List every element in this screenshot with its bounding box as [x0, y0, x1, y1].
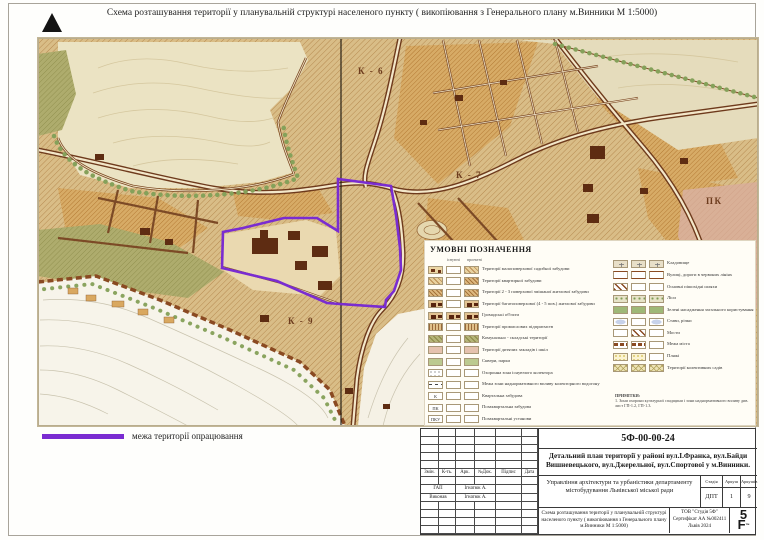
legend-row: Громадські об'єкти: [428, 310, 610, 322]
legend-row: Території малоповерхової садибної забудо…: [428, 264, 610, 276]
legend-swatch: [428, 300, 443, 308]
stage-value: ДПТ: [701, 488, 723, 507]
empty-cell: [439, 477, 456, 485]
empty-cell: [522, 477, 538, 485]
legend-swatch: [649, 318, 664, 326]
title-block-right: 5Ф-00-00-24 Детальний план території у р…: [538, 429, 757, 534]
empty-cell: [496, 429, 522, 437]
project-title: Детальний план території у районі вул.І.…: [539, 449, 757, 476]
legend-label: Комунально - складські території: [482, 336, 547, 341]
legend-swatch: [446, 346, 461, 354]
legend-row: Вулиці, дороги в червоних лініях: [613, 270, 755, 282]
studio-5f-logo: 5 Fтм: [730, 508, 757, 533]
legend-swatch: [631, 306, 646, 314]
sheet-label: Аркуш: [723, 476, 741, 488]
legend-swatch: [649, 295, 664, 303]
legend-swatch: [446, 335, 461, 343]
column-header-cell: Дата: [522, 469, 538, 477]
legend-swatch: [464, 369, 479, 377]
legend-swatch: [649, 329, 664, 337]
empty-cell: [475, 502, 496, 510]
legend-swatch: [613, 295, 628, 303]
legend-label: Території дитячих закладів і шкіл: [482, 348, 548, 353]
column-header-cell: Змін.: [421, 469, 439, 477]
sheets-label: Аркушів: [741, 476, 757, 488]
map-quarter-label: К - 7: [456, 170, 482, 180]
legend-right-rows: КладовищеВулиці, дороги в червоних лінія…: [613, 258, 755, 374]
column-header-cell: Арк.: [456, 469, 475, 477]
company-city-year: Львів 2024: [688, 524, 711, 529]
signature-cell: Виконав: [421, 494, 456, 502]
sheet-name: Схема розташування території у плануваль…: [539, 508, 670, 533]
empty-cell: [475, 453, 496, 461]
legend-label: Кладовище: [667, 261, 689, 266]
legend-row: Території промислових підприємств: [428, 322, 610, 334]
legend-swatch: [446, 312, 461, 320]
legend-swatch: [428, 323, 443, 331]
legend-label: Ліси: [667, 296, 676, 301]
empty-cell: [496, 518, 522, 526]
legend-row: Межа міста: [613, 339, 755, 351]
legend-label: Пляжі: [667, 354, 679, 359]
legend-swatch: [446, 392, 461, 400]
legend-label: Території багатоповерхової (4 - 5 пов.) …: [482, 302, 595, 307]
legend-notes: ПРИМІТКИ: 1. Зони охорони культурної спа…: [615, 393, 755, 408]
legend-swatch: [428, 381, 443, 389]
map-hill: [58, 42, 308, 188]
empty-cell: [475, 445, 496, 453]
map-quarter-label: К - 9: [288, 316, 314, 326]
legend-row: ККвартальна забудова: [428, 391, 610, 403]
legend-label: Громадські об'єкти: [482, 313, 519, 318]
legend-swatch: [464, 415, 479, 423]
empty-cell: [421, 502, 439, 510]
legend-row: Пляжі: [613, 351, 755, 363]
legend-swatch: [613, 283, 628, 291]
legend-swatch: [446, 369, 461, 377]
legend-swatch: [464, 277, 479, 285]
empty-cell: [421, 526, 439, 534]
legend-swatch: [428, 358, 443, 366]
legend-swatch: [446, 289, 461, 297]
empty-cell: [439, 445, 456, 453]
empty-cell: [475, 526, 496, 534]
legend-swatch: [446, 277, 461, 285]
empty-cell: [456, 437, 475, 445]
client-name: Управління архітектури та урбаністики де…: [539, 476, 701, 507]
column-header-cell: №Док.: [475, 469, 496, 477]
legend-row: Сквери, парки: [428, 356, 610, 368]
legend-swatch: [649, 353, 664, 361]
legend-swatch: [631, 260, 646, 268]
legend-swatch: [649, 283, 664, 291]
legend-notes-text: 1. Зони охорони культурної спадщини і зо…: [615, 398, 748, 408]
empty-cell: [421, 453, 439, 461]
legend-swatch: [464, 392, 479, 400]
legend-panel: УМОВНІ ПОЗНАЧЕННЯ існуючі проектні Терит…: [424, 240, 756, 426]
legend-swatch: [631, 353, 646, 361]
empty-cell: [475, 437, 496, 445]
legend-swatch: К: [428, 392, 443, 400]
legend-row: ПКУПозаквартальні установи: [428, 414, 610, 426]
empty-cell: [475, 429, 496, 437]
legend-row: Території колективних садів: [613, 362, 755, 374]
empty-cell: [522, 494, 538, 502]
legend-swatch: [446, 415, 461, 423]
empty-cell: [456, 502, 475, 510]
empty-cell: [439, 518, 456, 526]
legend-swatch: ПК: [428, 404, 443, 412]
empty-cell: [496, 453, 522, 461]
boundary-legend-label: межа території опрацювання: [132, 431, 243, 441]
legend-swatch: [464, 335, 479, 343]
legend-swatch: [464, 381, 479, 389]
legend-swatch: [631, 364, 646, 372]
signature-cell: Ігнатюк А.: [456, 485, 496, 493]
legend-label: Основні пішохідні шляхи: [667, 285, 717, 290]
legend-label: Території квартирної забудови: [482, 279, 542, 284]
empty-cell: [496, 445, 522, 453]
empty-cell: [439, 429, 456, 437]
company-info: ТОВ "Студія 5Ф" Сертифікат АА №002411 Ль…: [670, 508, 730, 533]
logo-tm: тм: [746, 522, 750, 526]
legend-row: Комунально - складські території: [428, 333, 610, 345]
empty-cell: [475, 510, 496, 518]
sheets-value: 9: [741, 488, 757, 507]
empty-cell: [456, 526, 475, 534]
title-block-signature-table: Змін.К-ть.Арк.№Док.ПідписДатаГАПІгнатюк …: [421, 429, 538, 534]
empty-cell: [475, 518, 496, 526]
empty-cell: [439, 437, 456, 445]
legend-row: ПКПозаквартальна забудова: [428, 402, 610, 414]
boundary-legend: межа території опрацювання: [42, 431, 243, 441]
empty-cell: [522, 485, 538, 493]
company-certificate: Сертифікат АА №002411: [673, 517, 726, 522]
legend-swatch: [613, 271, 628, 279]
legend-swatch: [464, 289, 479, 297]
legend-row: Ліси: [613, 293, 755, 305]
empty-cell: [522, 518, 538, 526]
legend-swatch: [649, 364, 664, 372]
stage-label: Стадія: [701, 476, 723, 488]
empty-cell: [522, 445, 538, 453]
legend-label: Території промислових підприємств: [482, 325, 553, 330]
empty-cell: [522, 437, 538, 445]
legend-row: Території квартирної забудови: [428, 276, 610, 288]
empty-cell: [439, 453, 456, 461]
legend-row: Кладовище: [613, 258, 755, 270]
legend-swatch: [464, 312, 479, 320]
legend-swatch: [428, 312, 443, 320]
legend-label: Території 2 - 3 поверхової змішаної житл…: [482, 290, 589, 295]
empty-cell: [475, 477, 496, 485]
legend-swatch: [446, 300, 461, 308]
legend-swatch: [631, 271, 646, 279]
empty-cell: [421, 429, 439, 437]
legend-swatch: [428, 335, 443, 343]
legend-swatch: [613, 329, 628, 337]
company-name: ТОВ "Студія 5Ф": [681, 510, 718, 515]
stage-table: Стадія Аркуш Аркушів ДПТ 1 9: [701, 476, 757, 507]
legend-label: Позаквартальні установи: [482, 417, 531, 422]
legend-swatch: [446, 358, 461, 366]
empty-cell: [439, 502, 456, 510]
legend-swatch: [613, 364, 628, 372]
legend-swatch: [464, 266, 479, 274]
legend-swatch: [613, 353, 628, 361]
legend-swatch: [446, 266, 461, 274]
legend-swatch: [613, 318, 628, 326]
legend-swatch: [631, 295, 646, 303]
legend-row: Території 2 - 3 поверхової змішаної житл…: [428, 287, 610, 299]
empty-cell: [522, 502, 538, 510]
column-header-cell: Підпис: [496, 469, 522, 477]
empty-cell: [439, 526, 456, 534]
legend-swatch: [464, 404, 479, 412]
legend-swatch: [613, 306, 628, 314]
legend-swatch: [649, 341, 664, 349]
legend-label: Сквери, парки: [482, 359, 510, 364]
empty-cell: [421, 437, 439, 445]
doc-number: 5Ф-00-00-24: [539, 429, 757, 449]
empty-cell: [421, 461, 439, 469]
empty-cell: [496, 477, 522, 485]
column-header-cell: К-ть.: [439, 469, 456, 477]
legend-swatch: [464, 346, 479, 354]
empty-cell: [475, 461, 496, 469]
empty-cell: [496, 461, 522, 469]
empty-cell: [456, 461, 475, 469]
empty-cell: [421, 518, 439, 526]
empty-cell: [439, 510, 456, 518]
legend-swatch: [631, 329, 646, 337]
empty-cell: [421, 445, 439, 453]
legend-swatch: [613, 341, 628, 349]
legend-swatch: [649, 271, 664, 279]
empty-cell: [421, 477, 439, 485]
sheet-value: 1: [723, 488, 741, 507]
legend-row: Охоронна зона існуючого колектора: [428, 368, 610, 380]
legend-row: Зелені насадження загального користуванн…: [613, 304, 755, 316]
empty-cell: [522, 453, 538, 461]
legend-row: Мости: [613, 328, 755, 340]
legend-label: Зелені насадження загального користуванн…: [667, 308, 754, 313]
legend-row: Межа зони наднормативного впливу колекто…: [428, 379, 610, 391]
legend-label: Охоронна зона існуючого колектора: [482, 371, 553, 376]
empty-cell: [496, 494, 522, 502]
empty-cell: [496, 485, 522, 493]
empty-cell: [456, 445, 475, 453]
empty-cell: [522, 461, 538, 469]
legend-label: Стави, річки: [667, 319, 692, 324]
legend-swatch: [613, 260, 628, 268]
legend-swatch: [631, 341, 646, 349]
legend-label: Квартальна забудова: [482, 394, 522, 399]
legend-title: УМОВНІ ПОЗНАЧЕННЯ: [430, 245, 532, 254]
legend-label: Межа зони наднормативного впливу колекто…: [482, 382, 600, 387]
legend-swatch: [631, 283, 646, 291]
legend-label: Позаквартальна забудова: [482, 405, 531, 410]
legend-row: Основні пішохідні шляхи: [613, 281, 755, 293]
empty-cell: [456, 518, 475, 526]
legend-swatch: [428, 266, 443, 274]
legend-swatch: [649, 306, 664, 314]
legend-swatch: [446, 381, 461, 389]
boundary-line-swatch: [42, 434, 124, 439]
legend-swatch: [464, 300, 479, 308]
signature-cell: Ігнатюк А.: [456, 494, 496, 502]
legend-swatch: [428, 346, 443, 354]
empty-cell: [522, 429, 538, 437]
map-quarter-label: К - 6: [358, 66, 384, 76]
legend-swatch: [649, 260, 664, 268]
legend-label: Вулиці, дороги в червоних лініях: [667, 273, 732, 278]
empty-cell: [439, 461, 456, 469]
empty-cell: [456, 510, 475, 518]
legend-swatch: [428, 369, 443, 377]
empty-cell: [456, 477, 475, 485]
empty-cell: [522, 526, 538, 534]
legend-col-header-existing: існуючі: [447, 257, 460, 262]
legend-row: Стави, річки: [613, 316, 755, 328]
signature-cell: ГАП: [421, 485, 456, 493]
empty-cell: [496, 526, 522, 534]
legend-swatch: [428, 289, 443, 297]
empty-cell: [421, 510, 439, 518]
legend-swatch: [464, 358, 479, 366]
empty-cell: [496, 502, 522, 510]
legend-label: Межа міста: [667, 342, 690, 347]
legend-col-header-planned: проектні: [467, 257, 482, 262]
empty-cell: [456, 429, 475, 437]
legend-swatch: [464, 323, 479, 331]
legend-swatch: [446, 323, 461, 331]
empty-cell: [522, 510, 538, 518]
legend-label: Території малоповерхової садибної забудо…: [482, 267, 569, 272]
north-arrow-icon: [42, 13, 62, 32]
empty-cell: [456, 453, 475, 461]
legend-row: Території багатоповерхової (4 - 5 пов.) …: [428, 299, 610, 311]
legend-swatch: ПКУ: [428, 415, 443, 423]
legend-swatch: [428, 277, 443, 285]
legend-left-rows: Території малоповерхової садибної забудо…: [428, 264, 610, 425]
empty-cell: [496, 437, 522, 445]
sheet-top-title: Схема розташування території у плануваль…: [0, 8, 764, 18]
logo-bottom: F: [738, 517, 746, 532]
legend-label: Території колективних садів: [667, 366, 722, 371]
title-block: Змін.К-ть.Арк.№Док.ПідписДатаГАПІгнатюк …: [420, 428, 756, 535]
empty-cell: [496, 510, 522, 518]
legend-swatch: [631, 318, 646, 326]
legend-label: Мости: [667, 331, 680, 336]
legend-swatch: [446, 404, 461, 412]
map-quarter-label: ПК: [706, 196, 723, 206]
legend-row: Території дитячих закладів і шкіл: [428, 345, 610, 357]
